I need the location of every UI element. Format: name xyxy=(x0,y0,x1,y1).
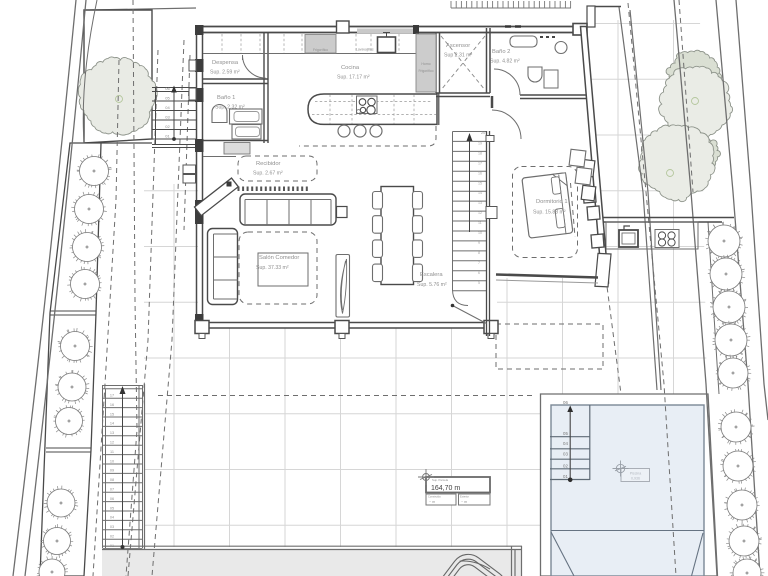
svg-text:Horno: Horno xyxy=(421,62,430,66)
svg-text:05: 05 xyxy=(110,506,114,510)
svg-text:06: 06 xyxy=(165,86,170,91)
svg-text:Frigorífico: Frigorífico xyxy=(418,69,433,73)
svg-text:Exterior: Exterior xyxy=(460,495,469,499)
svg-text:05: 05 xyxy=(165,96,170,101)
svg-text:Sup. 5.76 m²: Sup. 5.76 m² xyxy=(417,282,447,288)
svg-text:Sup 2.31 m²: Sup 2.31 m² xyxy=(444,53,473,59)
svg-text:09: 09 xyxy=(110,469,114,473)
svg-text:Sup. 2.59 m²: Sup. 2.59 m² xyxy=(210,70,240,76)
svg-text:10: 10 xyxy=(110,459,114,463)
svg-text:Sup. 2.67 m²: Sup. 2.67 m² xyxy=(253,171,283,177)
svg-text:Sup. 2.32 m²: Sup. 2.32 m² xyxy=(215,105,245,111)
svg-text:Baño 2: Baño 2 xyxy=(492,49,510,55)
svg-text:15: 15 xyxy=(110,412,114,416)
svg-text:Construida: Construida xyxy=(428,495,441,499)
svg-text:6: 6 xyxy=(478,271,480,275)
svg-text:03: 03 xyxy=(563,451,568,456)
svg-text:14: 14 xyxy=(110,422,114,426)
svg-text:Baño 1: Baño 1 xyxy=(217,95,235,101)
svg-text:7: 7 xyxy=(478,261,480,265)
svg-text:08: 08 xyxy=(110,478,114,482)
svg-text:15: 15 xyxy=(478,181,482,185)
svg-text:Ascensor: Ascensor xyxy=(446,43,470,49)
svg-text:04: 04 xyxy=(110,516,114,520)
svg-text:5: 5 xyxy=(478,281,480,285)
svg-text:01: 01 xyxy=(563,474,568,479)
svg-text:18: 18 xyxy=(478,151,482,155)
svg-text:05: 05 xyxy=(563,431,568,436)
svg-text:17: 17 xyxy=(478,161,482,165)
svg-text:12: 12 xyxy=(110,441,114,445)
svg-text:07: 07 xyxy=(110,488,114,492)
svg-text:Sup. 37.33 m²: Sup. 37.33 m² xyxy=(256,265,289,271)
svg-text:9: 9 xyxy=(478,241,480,245)
svg-text:04: 04 xyxy=(165,105,170,110)
svg-text:02: 02 xyxy=(165,124,170,129)
svg-text:03: 03 xyxy=(165,115,170,120)
svg-text:Cocina: Cocina xyxy=(341,65,360,71)
svg-text:Sup. 4.82 m²: Sup. 4.82 m² xyxy=(490,59,520,65)
svg-text:13: 13 xyxy=(110,431,114,435)
svg-text:11: 11 xyxy=(478,221,482,225)
svg-text:13: 13 xyxy=(478,201,482,205)
svg-text:02: 02 xyxy=(563,463,568,468)
svg-text:Sup. 17.17 m²: Sup. 17.17 m² xyxy=(337,75,370,81)
svg-text:10: 10 xyxy=(478,231,482,235)
svg-text:164,70 m: 164,70 m xyxy=(431,485,460,492)
svg-text:− m: − m xyxy=(461,500,467,504)
svg-text:Sup. Parcela: Sup. Parcela xyxy=(432,478,448,482)
svg-text:Frigorífico: Frigorífico xyxy=(313,48,328,52)
svg-text:16: 16 xyxy=(478,171,482,175)
svg-text:Piscina: Piscina xyxy=(630,472,642,476)
svg-text:11: 11 xyxy=(110,450,114,454)
svg-text:01: 01 xyxy=(110,544,114,548)
svg-text:8: 8 xyxy=(478,251,480,255)
svg-text:06: 06 xyxy=(110,497,114,501)
svg-text:16: 16 xyxy=(110,403,114,407)
svg-text:12: 12 xyxy=(478,211,482,215)
svg-text:Recibidor: Recibidor xyxy=(256,161,281,167)
svg-text:20: 20 xyxy=(481,131,485,135)
svg-text:Dormitorio 1: Dormitorio 1 xyxy=(536,199,568,205)
svg-text:03: 03 xyxy=(110,525,114,529)
svg-text:17: 17 xyxy=(110,394,114,398)
svg-text:0,936: 0,936 xyxy=(631,477,640,481)
svg-text:Lavavajillas: Lavavajillas xyxy=(356,48,374,52)
svg-text:19: 19 xyxy=(478,142,482,146)
svg-text:Escalera: Escalera xyxy=(420,272,443,278)
svg-text:02: 02 xyxy=(110,535,114,539)
svg-text:− m: − m xyxy=(429,500,435,504)
svg-text:14: 14 xyxy=(478,191,482,195)
svg-text:Despensa: Despensa xyxy=(212,60,239,66)
svg-text:06: 06 xyxy=(563,400,568,405)
svg-text:Salón Comedor: Salón Comedor xyxy=(259,255,299,261)
svg-text:04: 04 xyxy=(563,441,568,446)
svg-text:Sup. 15.88 m²: Sup. 15.88 m² xyxy=(533,210,566,216)
svg-text:01: 01 xyxy=(165,134,170,139)
